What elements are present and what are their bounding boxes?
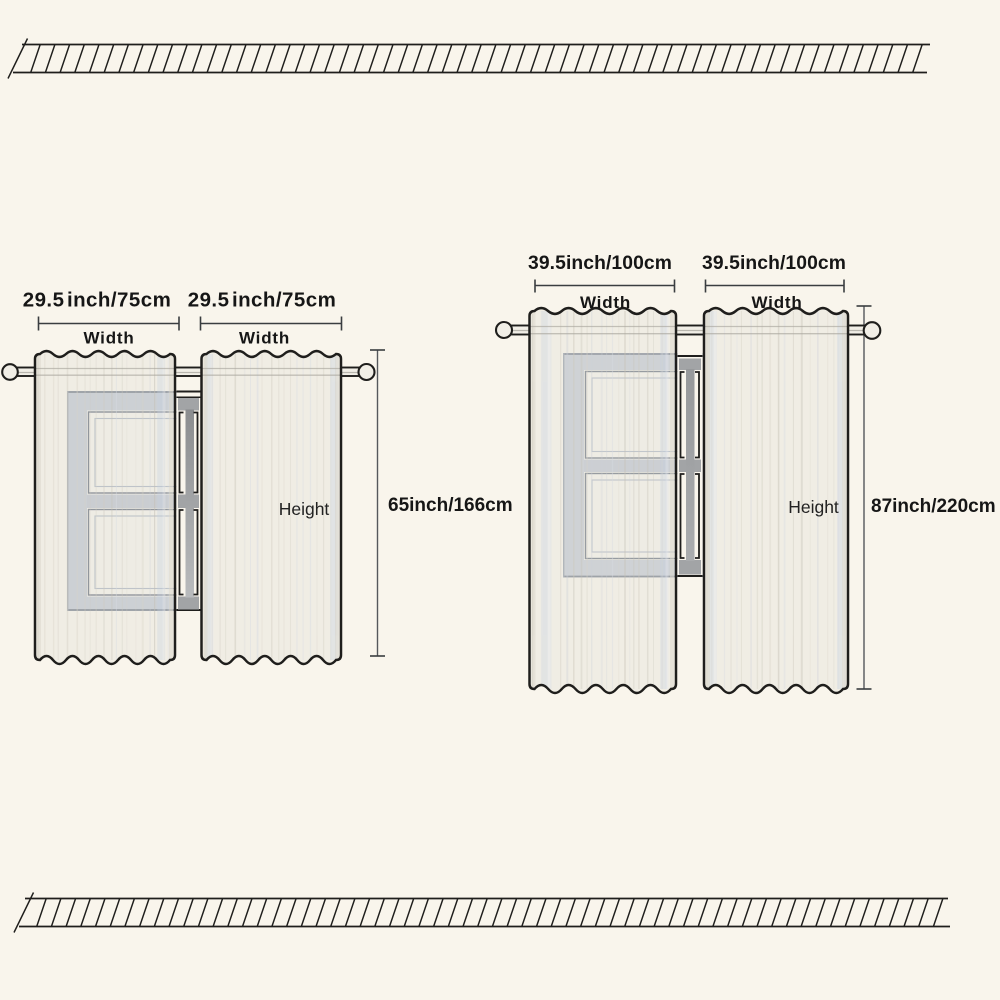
svg-text:65inch/166cm: 65inch/166cm bbox=[388, 495, 513, 516]
svg-text:29.5inch/75cm: 29.5inch/75cm bbox=[23, 289, 172, 312]
svg-text:Width: Width bbox=[83, 329, 134, 348]
svg-text:Width: Width bbox=[751, 293, 802, 312]
svg-text:29.5inch/75cm: 29.5inch/75cm bbox=[188, 289, 337, 312]
svg-text:Height: Height bbox=[279, 499, 330, 519]
svg-text:39.5inch/100cm: 39.5inch/100cm bbox=[528, 253, 672, 274]
svg-text:Width: Width bbox=[580, 293, 631, 312]
svg-text:39.5inch/100cm: 39.5inch/100cm bbox=[702, 253, 846, 274]
svg-text:Width: Width bbox=[239, 329, 290, 348]
svg-text:87inch/220cm: 87inch/220cm bbox=[871, 496, 996, 517]
svg-text:Height: Height bbox=[788, 497, 839, 517]
